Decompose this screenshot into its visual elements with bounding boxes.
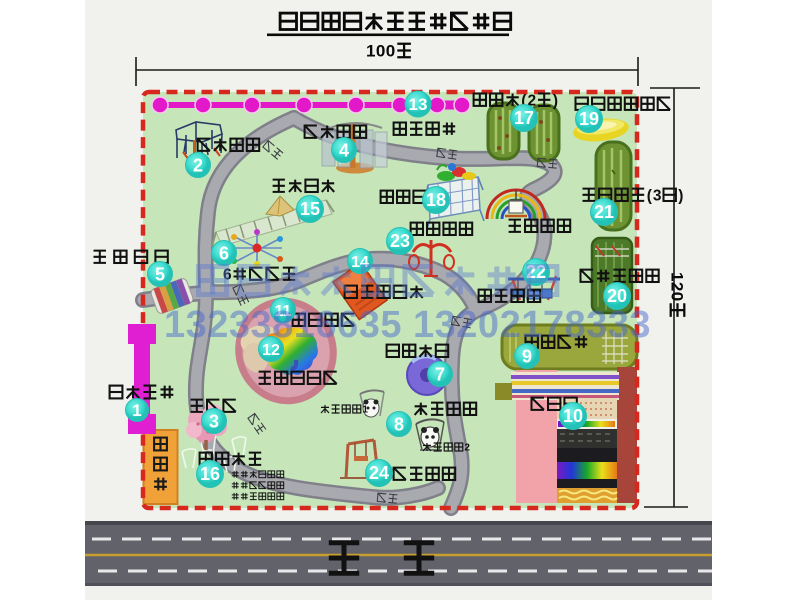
- svg-text:10: 10: [563, 406, 583, 426]
- svg-text:13: 13: [409, 95, 428, 114]
- svg-text:0: 0: [376, 42, 385, 61]
- svg-text:24: 24: [369, 463, 389, 483]
- svg-text:1: 1: [132, 401, 141, 420]
- svg-text:5: 5: [155, 264, 165, 284]
- svg-text:4: 4: [339, 140, 349, 160]
- svg-text:8: 8: [394, 414, 404, 434]
- svg-text:18: 18: [426, 190, 446, 210]
- svg-text:1: 1: [667, 272, 686, 281]
- svg-text:17: 17: [514, 108, 534, 128]
- svg-text:3: 3: [653, 187, 662, 204]
- svg-text:): ): [678, 187, 683, 204]
- svg-text:6: 6: [219, 243, 229, 263]
- svg-text:3: 3: [209, 411, 219, 431]
- svg-text:2: 2: [667, 282, 686, 291]
- svg-text:7: 7: [435, 364, 445, 384]
- svg-text:0: 0: [386, 42, 395, 61]
- svg-text:): ): [553, 92, 558, 109]
- svg-text:2: 2: [193, 155, 203, 175]
- svg-text:2: 2: [464, 443, 470, 454]
- svg-text:13233816635 13202178333: 13233816635 13202178333: [164, 304, 651, 346]
- svg-text:16: 16: [200, 464, 220, 484]
- svg-text:15: 15: [300, 199, 320, 219]
- svg-text:0: 0: [667, 292, 686, 301]
- svg-text:9: 9: [522, 346, 532, 366]
- svg-text:23: 23: [390, 231, 410, 251]
- svg-text:(: (: [647, 187, 653, 204]
- svg-text:1: 1: [362, 405, 368, 416]
- svg-text:19: 19: [579, 109, 599, 129]
- svg-text:21: 21: [594, 202, 614, 222]
- svg-text:1: 1: [366, 42, 375, 61]
